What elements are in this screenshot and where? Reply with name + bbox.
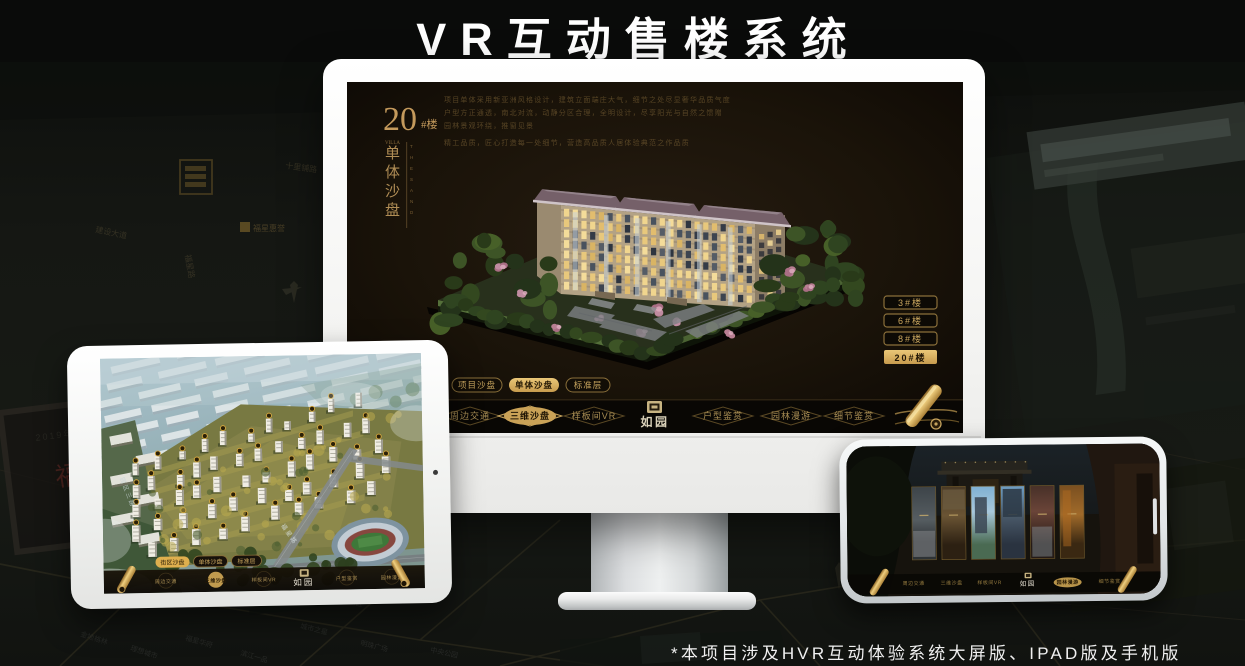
svg-text:H: H xyxy=(410,155,413,160)
svg-text:户型鉴赏: 户型鉴赏 xyxy=(703,410,743,421)
svg-text:园林漫游: 园林漫游 xyxy=(1057,579,1079,586)
svg-text:项目沙盘: 项目沙盘 xyxy=(458,380,496,390)
svg-text:细节鉴赏: 细节鉴赏 xyxy=(1099,578,1121,585)
svg-text:样板间VR: 样板间VR xyxy=(572,410,617,421)
svg-text:户型方正通透，南北对流，动静分区合理，全明设计，尽享阳光与自: 户型方正通透，南北对流，动静分区合理，全明设计，尽享阳光与自然之馈赠 xyxy=(444,108,723,117)
svg-text:三维沙盘: 三维沙盘 xyxy=(510,410,550,421)
svg-text:户型鉴赏: 户型鉴赏 xyxy=(336,575,358,582)
svg-text:如园: 如园 xyxy=(293,577,314,587)
svg-text:单: 单 xyxy=(385,145,400,162)
svg-text:标准层: 标准层 xyxy=(574,380,603,390)
svg-text:S: S xyxy=(410,177,413,182)
svg-text:20: 20 xyxy=(383,101,417,138)
svg-text:样板间VR: 样板间VR xyxy=(977,579,1002,586)
svg-text:20#楼: 20#楼 xyxy=(894,352,926,363)
svg-text:A: A xyxy=(410,188,413,193)
svg-text:如园: 如园 xyxy=(1020,579,1036,588)
svg-text:#楼: #楼 xyxy=(421,117,438,131)
svg-text:三维沙盘: 三维沙盘 xyxy=(205,577,227,584)
svg-text:精工品质，匠心打造每一处细节，营造高品质人居体验典范之作品质: 精工品质，匠心打造每一处细节，营造高品质人居体验典范之作品质 xyxy=(444,138,690,147)
svg-text:周边交通: 周边交通 xyxy=(155,578,177,585)
svg-text:细节鉴赏: 细节鉴赏 xyxy=(834,410,874,421)
svg-text:单体沙盘: 单体沙盘 xyxy=(515,380,553,390)
svg-text:盘: 盘 xyxy=(385,201,400,219)
svg-text:沙: 沙 xyxy=(385,184,400,200)
svg-text:园林漫游: 园林漫游 xyxy=(771,410,811,421)
svg-text:8#楼: 8#楼 xyxy=(898,333,923,344)
svg-text:6#楼: 6#楼 xyxy=(898,315,923,326)
svg-text:周边交通: 周边交通 xyxy=(903,580,925,587)
svg-text:3#楼: 3#楼 xyxy=(898,297,923,308)
svg-text:三维沙盘: 三维沙盘 xyxy=(941,579,963,586)
svg-text:周边交通: 周边交通 xyxy=(450,410,490,421)
svg-text:园林景观环绕，推窗见景: 园林景观环绕，推窗见景 xyxy=(444,121,534,130)
svg-text:T: T xyxy=(410,144,413,149)
svg-text:项目单体采用新亚洲风格设计，建筑立面端庄大气，细节之处尽显奢: 项目单体采用新亚洲风格设计，建筑立面端庄大气，细节之处尽显奢华品质气度 xyxy=(444,95,731,104)
svg-text:N: N xyxy=(410,199,413,204)
svg-text:样板间VR: 样板间VR xyxy=(252,576,277,583)
svg-text:福星惠誉: 福星惠誉 xyxy=(253,223,285,233)
svg-text:如园: 如园 xyxy=(640,414,669,429)
svg-text:体: 体 xyxy=(385,164,400,181)
svg-text:E: E xyxy=(410,166,413,171)
